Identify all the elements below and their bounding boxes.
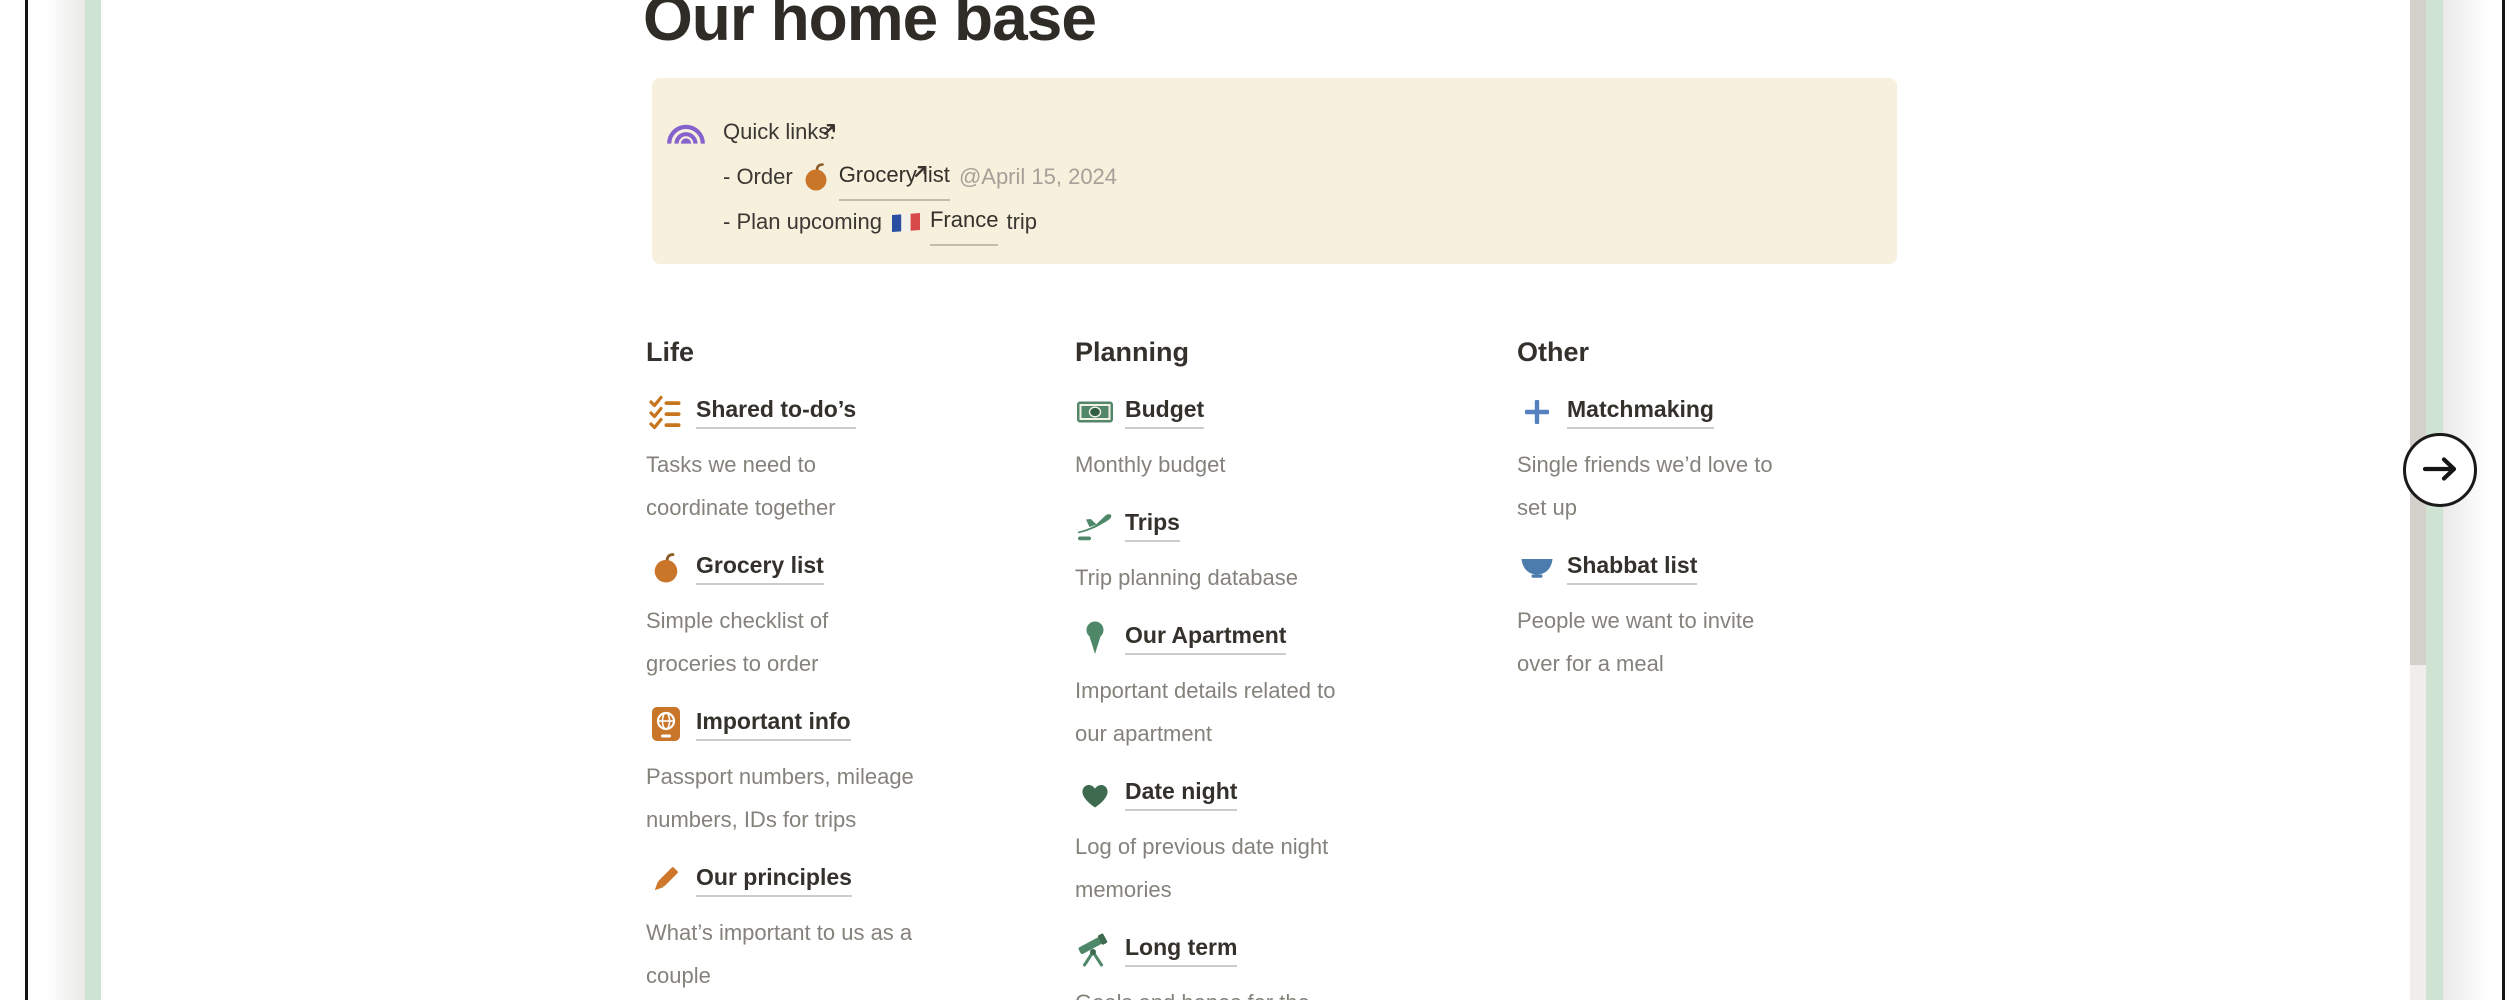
apple-icon	[803, 163, 829, 191]
link-grocery-list[interactable]: Grocery list	[646, 547, 1066, 589]
quick-link-suffix: trip	[1006, 199, 1037, 244]
airplane-departure-icon	[1075, 509, 1115, 541]
link-description: Trip planning database	[1075, 556, 1495, 599]
link-date-night[interactable]: Date night	[1075, 773, 1495, 815]
column-planning: Planning Budget Monthly budget	[1075, 337, 1495, 1000]
link-description: Goals and hopes for the	[1075, 981, 1495, 1000]
pencil-icon	[646, 863, 686, 897]
link-description: Important details related to our apartme…	[1075, 669, 1495, 755]
quick-links-callout: Quick links: - Order	[652, 78, 1897, 264]
column-heading: Life	[646, 337, 1066, 367]
passport-icon	[646, 706, 686, 742]
france-flag-icon	[892, 211, 920, 233]
link-trips[interactable]: Trips	[1075, 504, 1495, 546]
link-description: What’s important to us as a couple	[646, 911, 1066, 997]
link-description: Log of previous date night memories	[1075, 825, 1495, 911]
left-green-margin	[85, 0, 101, 1000]
column-life: Life	[646, 337, 1066, 1000]
link-description: Passport numbers, mileage numbers, IDs f…	[646, 755, 1066, 841]
plus-icon	[1517, 397, 1557, 427]
quick-link-plan-trip: - Plan upcoming	[723, 199, 1897, 244]
link-arrow-icon	[827, 104, 928, 239]
round-pushpin-icon	[1075, 620, 1115, 656]
link-label: Shared to-do’s	[696, 396, 856, 429]
template-carousel-viewport: Our home base Quick links: - Order	[0, 0, 2520, 1000]
column-other: Other Matchmaking Single friends we’d lo…	[1517, 337, 1937, 703]
link-label: Grocery list	[696, 552, 824, 585]
column-heading: Planning	[1075, 337, 1495, 367]
link-description: People we want to invite over for a meal	[1517, 599, 1937, 685]
link-label: Shabbat list	[1567, 552, 1697, 585]
link-description: Simple checklist of groceries to order	[646, 599, 1066, 685]
link-description: Monthly budget	[1075, 443, 1495, 486]
link-long-term[interactable]: Long term	[1075, 929, 1495, 971]
left-shadow	[28, 0, 85, 1000]
link-label: Our principles	[696, 864, 852, 897]
link-label: Trips	[1125, 509, 1180, 542]
notion-page-preview: Our home base Quick links: - Order	[101, 0, 2408, 1000]
link-arrow-icon	[736, 62, 837, 197]
heart-icon	[1075, 779, 1115, 809]
page-title: Our home base	[643, 0, 1096, 52]
link-our-apartment[interactable]: Our Apartment	[1075, 617, 1495, 659]
link-shared-todos[interactable]: Shared to-do’s	[646, 391, 1066, 433]
next-slide-edge	[2502, 0, 2505, 1000]
date-mention: @April 15, 2024	[959, 154, 1117, 199]
apple-icon	[646, 552, 686, 584]
link-important-info[interactable]: Important info	[646, 703, 1066, 745]
link-matchmaking[interactable]: Matchmaking	[1517, 391, 1937, 433]
link-label: Our Apartment	[1125, 622, 1286, 655]
banknote-icon	[1075, 399, 1115, 425]
next-slide-button[interactable]	[2403, 433, 2477, 507]
link-label: Important info	[696, 708, 851, 741]
arrow-right-icon	[2421, 455, 2459, 486]
link-our-principles[interactable]: Our principles	[646, 859, 1066, 901]
link-description: Single friends we’d love to set up	[1517, 443, 1937, 529]
scrollbar-thumb[interactable]	[2410, 0, 2426, 665]
telescope-icon	[1075, 933, 1115, 967]
column-heading: Other	[1517, 337, 1937, 367]
rainbow-icon	[665, 115, 707, 150]
link-label: Long term	[1125, 934, 1237, 967]
link-shabbat-list[interactable]: Shabbat list	[1517, 547, 1937, 589]
link-label: Budget	[1125, 396, 1204, 429]
link-label: Matchmaking	[1567, 396, 1714, 429]
france-trip-link[interactable]: France	[930, 197, 998, 246]
checklist-icon	[646, 393, 686, 431]
link-description: Tasks we need to coordinate together	[646, 443, 1066, 529]
link-budget[interactable]: Budget	[1075, 391, 1495, 433]
bowl-icon	[1517, 556, 1557, 580]
link-label: Date night	[1125, 778, 1237, 811]
